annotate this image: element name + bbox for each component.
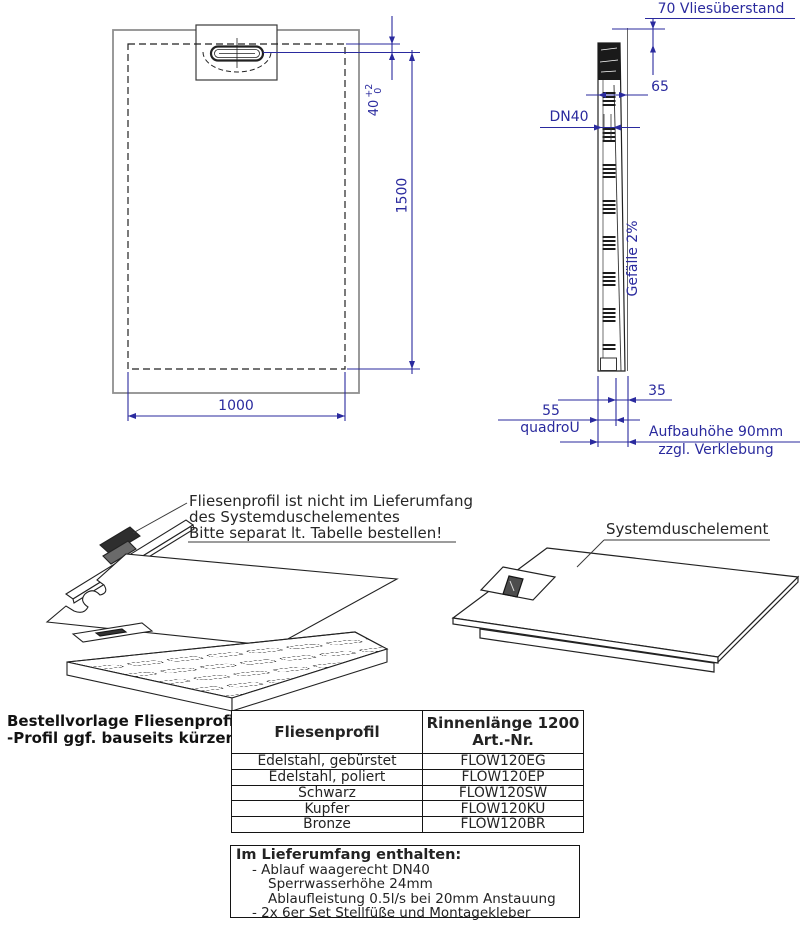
table-row: Schwarz FLOW120SW — [232, 785, 584, 801]
tray-outer-edge — [113, 30, 359, 393]
tray-inner-dashed-edge — [128, 44, 345, 369]
table-row: Kupfer FLOW120KU — [232, 801, 584, 817]
profile-note-line2: des Systemduschelementes — [189, 509, 473, 525]
profile-note: Fliesenprofil ist nicht im Lieferumfang … — [189, 493, 473, 541]
height-label-line1: Aufbauhöhe 90mm — [636, 425, 796, 440]
edge-dim-65: 65 — [646, 80, 674, 95]
included-item: - Ablauf waagerecht DN40 — [236, 863, 579, 877]
profile-note-line1: Fliesenprofil ist nicht im Lieferumfang — [189, 493, 473, 509]
table-row: Bronze FLOW120BR — [232, 817, 584, 833]
tolerance-stack: +2 0 — [365, 84, 383, 98]
header-col2-line2: Art.-Nr. — [423, 732, 583, 749]
plan-drain-offset-dim: 40 +2 0 — [366, 74, 382, 126]
included-box-title: Im Lieferumfang enthalten: — [236, 847, 579, 863]
profile-name: Schwarz — [232, 785, 423, 801]
drain-dn40-label: DN40 — [542, 110, 596, 125]
order-table-caption: Bestellvorlage Fliesenprofil -Profil ggf… — [7, 713, 242, 747]
header-col2-line1: Rinnenlänge 1200 — [423, 715, 583, 732]
profile-name: Kupfer — [232, 801, 423, 817]
exploded-view-left — [47, 520, 397, 711]
table-row: Edelstahl, gebürstet FLOW120EG — [232, 754, 584, 770]
included-box: Im Lieferumfang enthalten: - Ablauf waag… — [230, 845, 580, 918]
exploded-view-right — [453, 548, 798, 672]
profile-name: Bronze — [232, 817, 423, 833]
article-number: FLOW120EP — [423, 769, 584, 785]
article-number: FLOW120SW — [423, 785, 584, 801]
profile-name: Edelstahl, poliert — [232, 769, 423, 785]
plan-view-drawing — [113, 25, 359, 393]
slope-label: Gefälle 2% — [626, 211, 641, 306]
article-number: FLOW120KU — [423, 801, 584, 817]
foot-detail — [601, 358, 617, 371]
dim-35: 35 — [642, 384, 672, 399]
header-rinnenlaenge: Rinnenlänge 1200 Art.-Nr. — [423, 711, 584, 754]
drain-offset-value: 40 — [367, 100, 382, 117]
included-item: - 2x 6er Set Stellfüße und Montagekleber — [236, 906, 579, 920]
plan-length-dim: 1500 — [396, 173, 411, 219]
fleece-overhang-label: 70 Vliesüberstand — [646, 2, 796, 17]
profile-note-line3: Bitte separat lt. Tabelle bestellen! — [189, 525, 473, 541]
included-item: Sperrwasserhöhe 24mm — [236, 877, 579, 891]
order-table: Fliesenprofil Rinnenlänge 1200 Art.-Nr. … — [231, 710, 584, 833]
tolerance-lower: 0 — [374, 84, 383, 98]
caption-line2: -Profil ggf. bauseits kürzen- — [7, 730, 242, 747]
profile-name: Edelstahl, gebürstet — [232, 754, 423, 770]
height-label-line2: zzgl. Verklebung — [636, 443, 796, 458]
header-fliesenprofil: Fliesenprofil — [232, 711, 423, 754]
included-item: Ablaufleistung 0.5l/s bei 20mm Anstauung — [236, 892, 579, 906]
dim-55: 55 — [536, 404, 566, 419]
plan-width-dim: 1000 — [206, 399, 266, 414]
side-view-drawing — [598, 28, 628, 371]
caption-line1: Bestellvorlage Fliesenprofil — [7, 713, 242, 730]
table-header-row: Fliesenprofil Rinnenlänge 1200 Art.-Nr. — [232, 711, 584, 754]
article-number: FLOW120BR — [423, 817, 584, 833]
table-row: Edelstahl, poliert FLOW120EP — [232, 769, 584, 785]
brand-label: quadroU — [514, 421, 586, 436]
system-element-label: Systemduschelement — [606, 521, 776, 537]
article-number: FLOW120EG — [423, 754, 584, 770]
